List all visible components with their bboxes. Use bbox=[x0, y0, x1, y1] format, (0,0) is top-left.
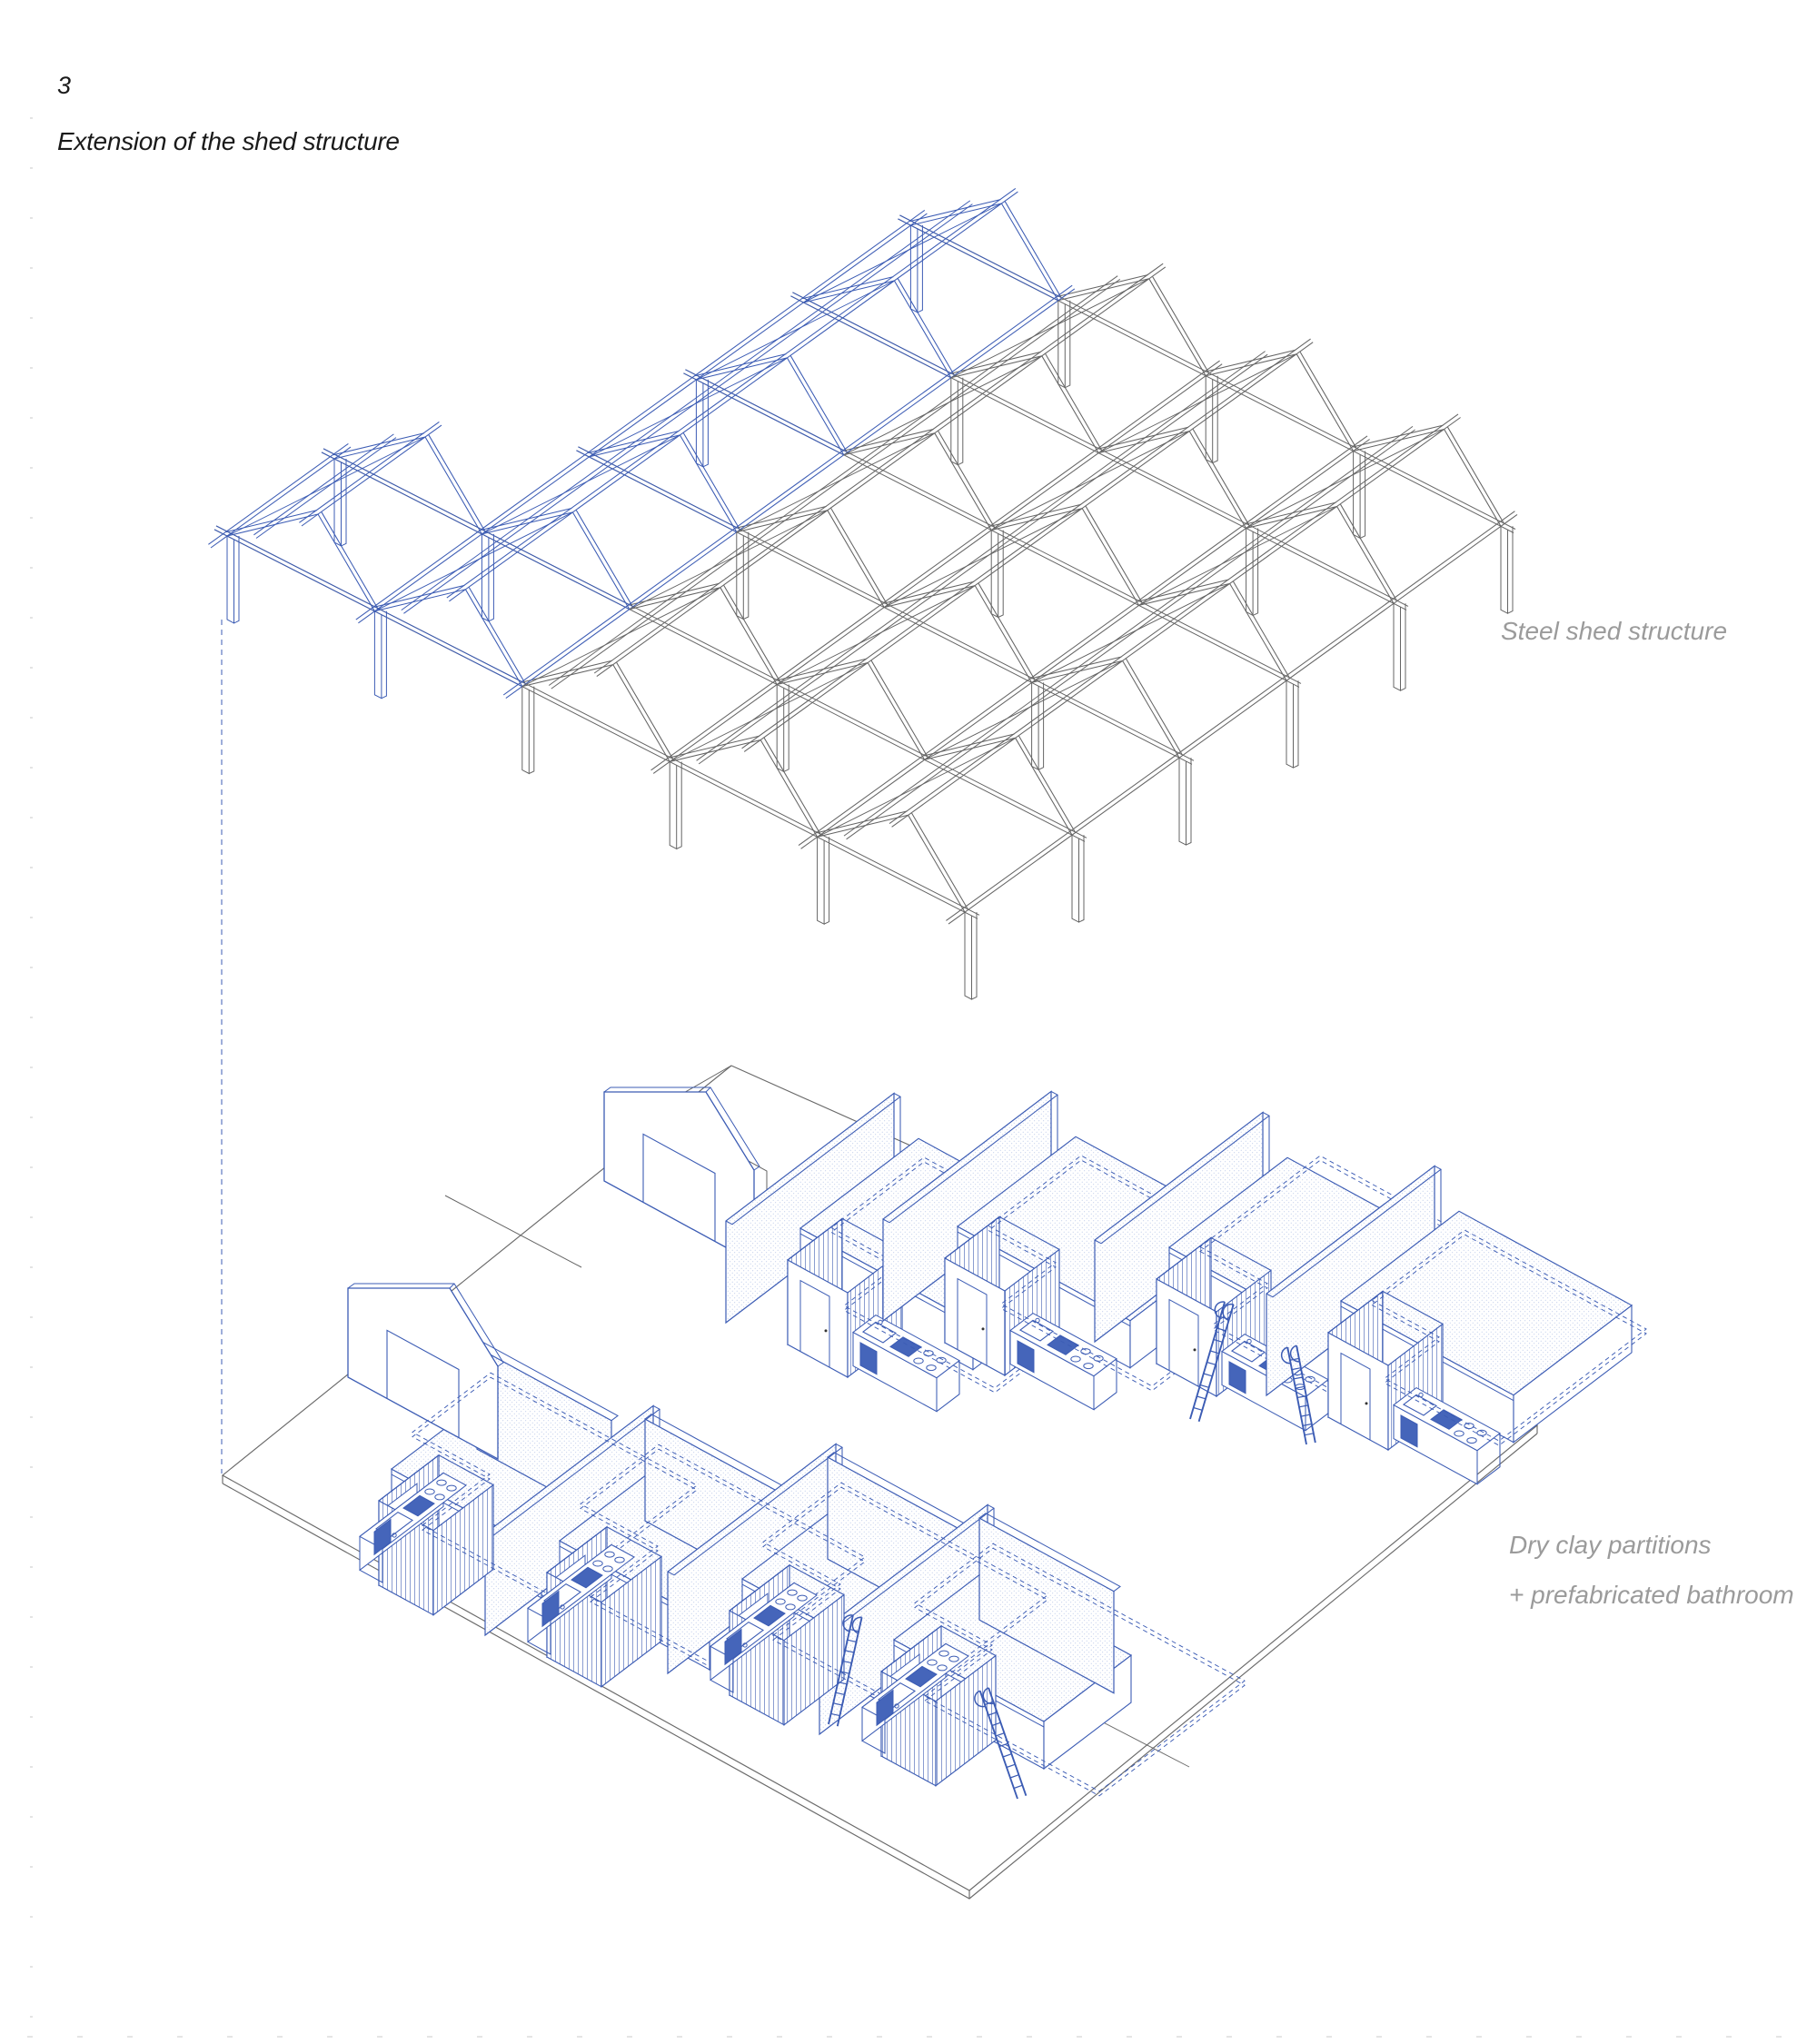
svg-text:Dry clay partitions: Dry clay partitions bbox=[1509, 1531, 1712, 1559]
svg-text:Steel shed structure: Steel shed structure bbox=[1501, 617, 1727, 645]
svg-text:3: 3 bbox=[57, 72, 71, 99]
svg-text:Extension of the shed structur: Extension of the shed structure bbox=[57, 127, 400, 155]
svg-text:+ prefabricated bathroom: + prefabricated bathroom bbox=[1509, 1581, 1794, 1609]
